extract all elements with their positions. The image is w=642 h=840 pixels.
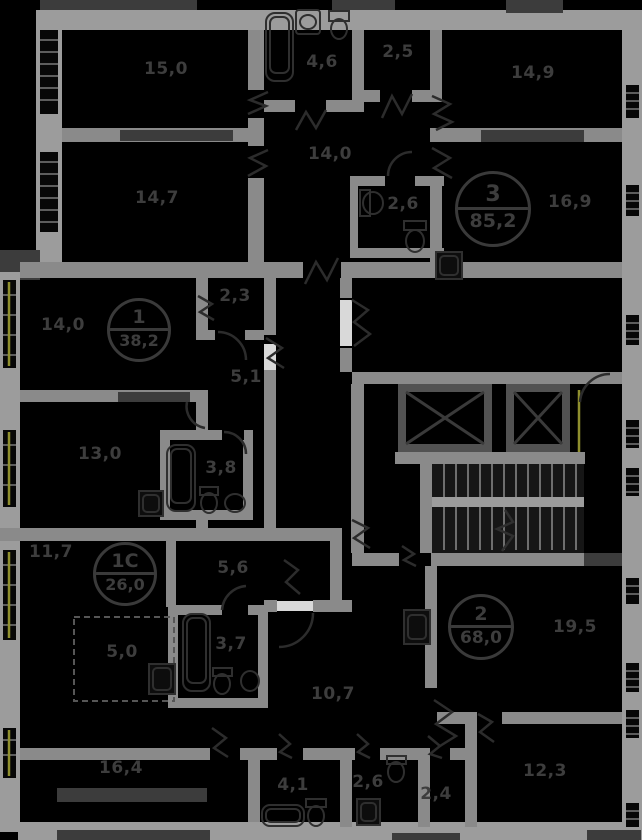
room-area-label: 2,6 <box>352 772 384 792</box>
toilet-icon <box>200 487 218 513</box>
washing-machine-icon <box>149 664 175 694</box>
window-icon <box>3 550 16 640</box>
room-area-label: 10,7 <box>311 684 355 704</box>
apartment-marker-1s[interactable]: 1С 26,0 <box>93 542 157 606</box>
bathtub-icon <box>167 445 195 511</box>
room-area-label: 5,1 <box>230 367 262 387</box>
room-area-label: 14,0 <box>308 144 352 164</box>
room-area-label: 12,3 <box>523 761 567 781</box>
door-arc-icon <box>388 152 412 176</box>
window-icon <box>40 152 58 232</box>
apartment-number: 2 <box>451 597 511 628</box>
floor-plan: 3 85,2 1 38,2 1С 26,0 2 68,0 15,0 14,7 4… <box>0 0 642 840</box>
door-icon <box>357 734 370 758</box>
room-area-label: 4,1 <box>277 775 309 795</box>
room-area-label: 13,0 <box>78 444 122 464</box>
apartment-number: 3 <box>458 174 528 210</box>
room-area-label: 14,7 <box>135 188 179 208</box>
room-area-label: 3,8 <box>205 458 237 478</box>
room-area-label: 16,4 <box>99 758 143 778</box>
door-icon <box>432 148 452 178</box>
washing-machine-icon <box>357 799 380 825</box>
door-icon <box>402 546 416 566</box>
room-area-label: 5,6 <box>217 558 249 578</box>
door-arc-icon <box>279 613 313 647</box>
door-arc-icon <box>224 432 246 454</box>
room-area-label: 14,9 <box>511 63 555 83</box>
sink-icon <box>225 494 245 512</box>
room-area-label: 15,0 <box>144 59 188 79</box>
window-icon <box>626 468 639 496</box>
door-arc-icon <box>222 586 246 610</box>
window-icon <box>626 420 639 448</box>
sink-icon <box>241 671 259 691</box>
elevator-icon <box>506 384 570 452</box>
door-icon <box>428 736 442 758</box>
door-icon <box>284 560 300 594</box>
toilet-icon <box>213 668 232 694</box>
apartment-marker-2[interactable]: 2 68,0 <box>448 594 514 660</box>
window-icon <box>626 663 639 692</box>
apartment-number: 1 <box>110 301 168 331</box>
door-arc-icon <box>218 332 246 360</box>
staircase-icon <box>432 464 584 553</box>
bathtub-icon <box>183 614 210 691</box>
window-icon <box>626 315 639 345</box>
washing-machine-icon <box>404 610 430 644</box>
room-area-label: 16,9 <box>548 192 592 212</box>
apartment-marker-3[interactable]: 3 85,2 <box>455 171 531 247</box>
door-icon <box>478 714 494 742</box>
window-icon <box>626 85 639 118</box>
door-icon <box>382 94 412 118</box>
room-area-label: 2,4 <box>420 784 452 804</box>
room-area-label: 2,6 <box>387 194 419 214</box>
window-icon <box>626 185 639 216</box>
door-icon <box>296 110 326 130</box>
window-icon <box>3 280 16 368</box>
washing-machine-icon <box>436 252 462 279</box>
door-icon <box>279 734 292 758</box>
room-area-label: 4,6 <box>306 52 338 72</box>
door-icon <box>352 300 370 346</box>
sink-icon <box>360 190 383 216</box>
washing-machine-icon <box>139 491 163 516</box>
window-icon <box>3 728 16 778</box>
window-icon <box>626 710 639 738</box>
window-icon <box>626 578 639 604</box>
apartment-number: 1С <box>96 545 154 575</box>
room-area-label: 2,5 <box>382 42 414 62</box>
room-area-label: 19,5 <box>553 617 597 637</box>
door-icon <box>305 258 338 284</box>
room-area-label: 2,3 <box>219 286 251 306</box>
elevator-icon <box>398 384 492 452</box>
door-icon <box>212 728 228 757</box>
window-icon <box>626 803 639 827</box>
toilet-icon <box>306 799 326 826</box>
floor-plan-drawing <box>0 0 642 840</box>
room-area-label: 3,7 <box>215 634 247 654</box>
toilet-icon <box>404 221 426 252</box>
window-icon <box>3 430 16 507</box>
apartment-marker-1[interactable]: 1 38,2 <box>107 298 171 362</box>
room-area-label: 14,0 <box>41 315 85 335</box>
door-icon <box>248 150 268 176</box>
room-area-label: 11,7 <box>29 542 73 562</box>
room-area-label: 5,0 <box>106 642 138 662</box>
elevator-shafts <box>398 384 579 452</box>
window-icon <box>40 30 58 114</box>
